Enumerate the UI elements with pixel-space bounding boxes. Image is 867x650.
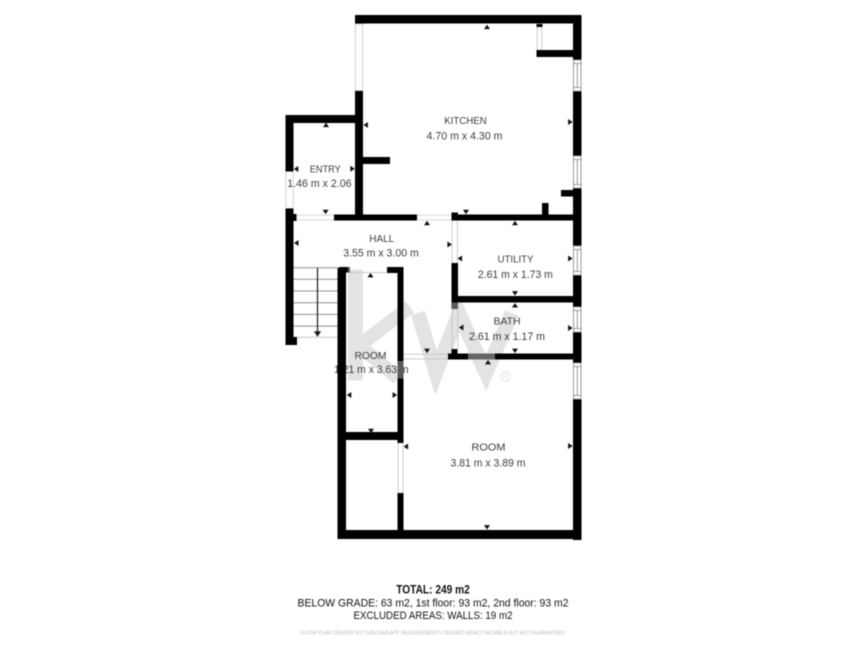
svg-text:ENTRY: ENTRY (310, 165, 341, 176)
svg-text:2.61 m x 1.73 m: 2.61 m x 1.73 m (478, 269, 553, 281)
svg-text:BELOW GRADE: 63 m2, 1st floor:: BELOW GRADE: 63 m2, 1st floor: 93 m2, 2n… (298, 598, 569, 610)
svg-text:HALL: HALL (369, 234, 394, 245)
svg-text:KITCHEN: KITCHEN (444, 116, 487, 127)
svg-text:ROOM: ROOM (355, 351, 387, 362)
svg-text:BATH: BATH (494, 317, 521, 328)
svg-text:3.55 m x 3.00 m: 3.55 m x 3.00 m (343, 248, 419, 260)
svg-text:1.46 m x 2.06 m: 1.46 m x 2.06 m (287, 178, 363, 190)
svg-text:4.70 m x 4.30 m: 4.70 m x 4.30 m (427, 131, 503, 143)
svg-text:R: R (503, 374, 508, 381)
svg-text:EXCLUDED AREAS: WALLS: 19 m2: EXCLUDED AREAS: WALLS: 19 m2 (354, 610, 513, 622)
svg-text:ROOM: ROOM (472, 443, 506, 454)
svg-text:UTILITY: UTILITY (498, 254, 534, 265)
svg-text:3.81 m x 3.89 m: 3.81 m x 3.89 m (451, 458, 526, 470)
svg-text:TOTAL: 249 m2: TOTAL: 249 m2 (396, 583, 470, 597)
svg-text:2.61 m x 1.17 m: 2.61 m x 1.17 m (469, 331, 545, 343)
svg-text:FLOOR PLAN CREATED BY CUBICASA: FLOOR PLAN CREATED BY CUBICASA APP. MEAS… (300, 630, 566, 636)
